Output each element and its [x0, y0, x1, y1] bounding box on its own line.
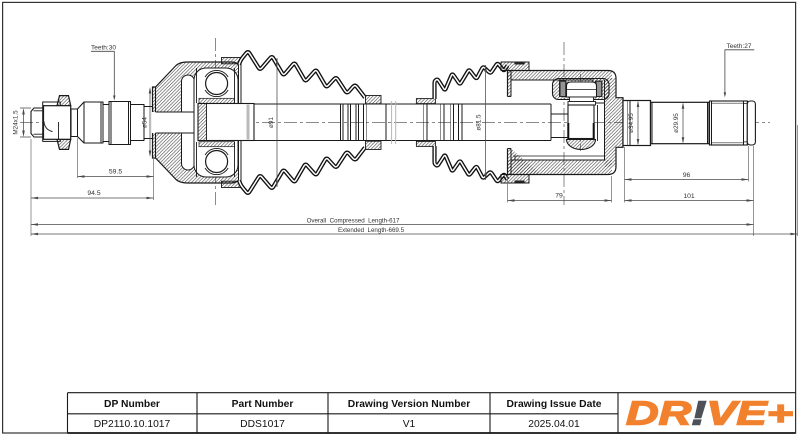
svg-text:2025.04.01: 2025.04.01: [528, 419, 580, 430]
svg-text:V1: V1: [403, 419, 416, 430]
svg-text:DP2110.10.1017: DP2110.10.1017: [94, 419, 171, 430]
svg-text:Part Number: Part Number: [232, 399, 294, 410]
svg-text:M24x1.5: M24x1.5: [13, 110, 20, 135]
svg-text:59.5: 59.5: [109, 169, 122, 176]
svg-text:101: 101: [683, 193, 695, 200]
svg-text:DP Number: DP Number: [104, 399, 160, 410]
svg-text:DDS1017: DDS1017: [240, 419, 285, 430]
svg-text:ø81.5: ø81.5: [476, 114, 483, 131]
svg-text:Teeth:27: Teeth:27: [727, 43, 752, 50]
svg-text:Teeth:30: Teeth:30: [91, 45, 116, 52]
svg-text:DR!VE+: DR!VE+: [626, 395, 793, 432]
svg-text:94.5: 94.5: [87, 190, 100, 197]
svg-text:Overall Compressed Length-61: Overall Compressed Length-617: [307, 218, 400, 225]
svg-text:ø34.95: ø34.95: [628, 113, 635, 133]
svg-text:Drawing Version Number: Drawing Version Number: [348, 399, 470, 410]
svg-text:ø29.95: ø29.95: [673, 113, 680, 133]
svg-text:Drawing Issue Date: Drawing Issue Date: [507, 399, 602, 410]
svg-text:Extended Length-669.5: Extended Length-669.5: [338, 227, 405, 234]
svg-text:96: 96: [683, 172, 691, 179]
svg-text:ø91: ø91: [268, 117, 275, 128]
svg-text:ø54: ø54: [142, 117, 149, 128]
svg-text:79: 79: [555, 193, 563, 200]
